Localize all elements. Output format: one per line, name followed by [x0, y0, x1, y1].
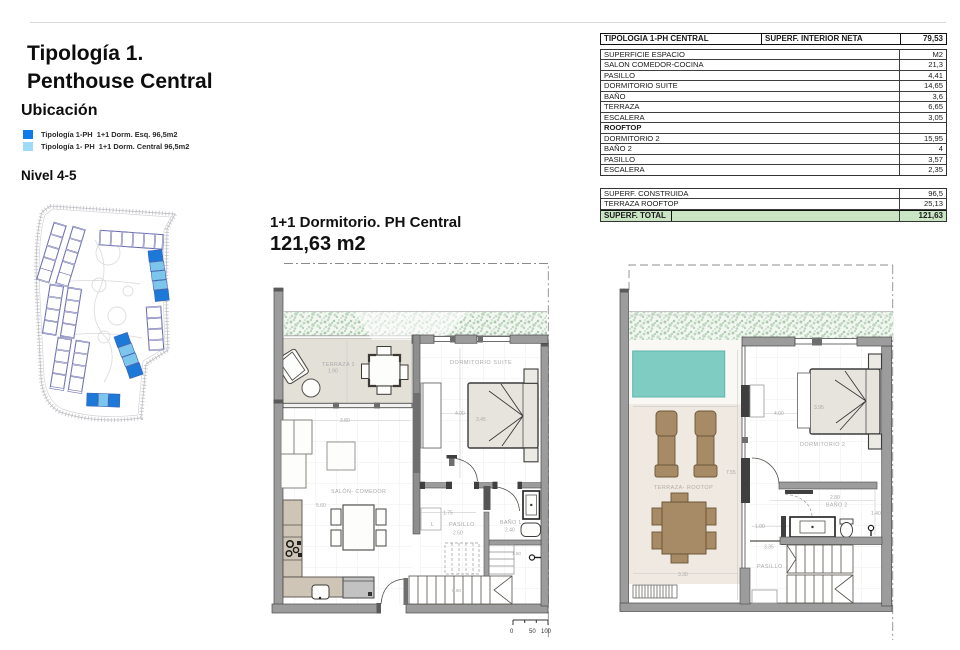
svg-text:1.90: 1.90 — [328, 369, 338, 375]
svg-text:2.50: 2.50 — [453, 531, 463, 537]
svg-text:2.40: 2.40 — [505, 528, 515, 534]
svg-text:BAÑO 1: BAÑO 1 — [500, 519, 522, 526]
svg-text:DORMITORIO 2: DORMITORIO 2 — [800, 442, 845, 448]
svg-text:4.00: 4.00 — [455, 411, 465, 417]
svg-text:TERRAZA- ROOTOP: TERRAZA- ROOTOP — [654, 485, 713, 491]
svg-text:1.40: 1.40 — [871, 511, 881, 517]
svg-text:PASILLO: PASILLO — [757, 564, 783, 570]
svg-text:0: 0 — [510, 629, 514, 635]
svg-text:1.75: 1.75 — [443, 511, 453, 517]
svg-text:3.35: 3.35 — [764, 545, 774, 551]
svg-text:PASILLO: PASILLO — [449, 522, 475, 528]
svg-text:3.95: 3.95 — [814, 405, 824, 411]
svg-text:TERRAZA 1: TERRAZA 1 — [322, 362, 355, 368]
svg-text:3.80: 3.80 — [340, 418, 350, 424]
svg-text:1.00: 1.00 — [755, 524, 765, 530]
svg-text:2.80: 2.80 — [830, 495, 840, 501]
svg-text:SALÓN- COMEDOR: SALÓN- COMEDOR — [331, 488, 386, 495]
svg-text:3.30: 3.30 — [678, 572, 688, 578]
svg-text:DORMITORIO SUITE: DORMITORIO SUITE — [450, 360, 512, 366]
svg-text:BAÑO 2: BAÑO 2 — [826, 502, 848, 509]
svg-text:0.60: 0.60 — [452, 588, 461, 593]
svg-text:5.60: 5.60 — [316, 503, 326, 509]
svg-text:7.55: 7.55 — [726, 470, 736, 476]
svg-text:L: L — [431, 522, 434, 528]
svg-text:3.45: 3.45 — [476, 417, 486, 423]
svg-text:4.00: 4.00 — [774, 411, 784, 417]
svg-text:50: 50 — [529, 629, 536, 635]
svg-text:100: 100 — [541, 629, 552, 635]
